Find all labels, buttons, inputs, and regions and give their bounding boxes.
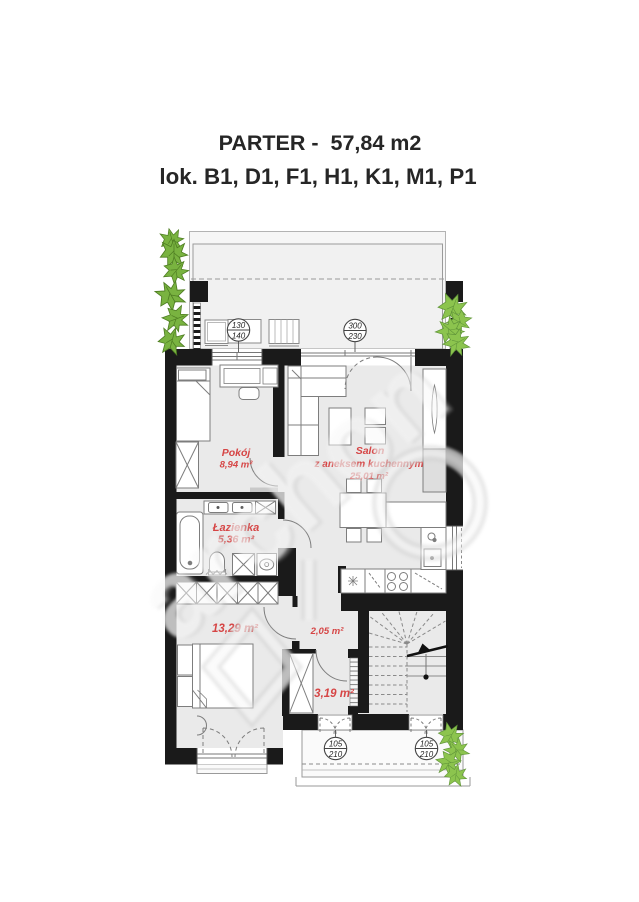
svg-text:105: 105 xyxy=(420,740,434,749)
svg-text:lok. B1, D1, F1, H1, K1, M1, P: lok. B1, D1, F1, H1, K1, M1, P1 xyxy=(159,164,476,189)
svg-text:140: 140 xyxy=(232,332,246,341)
svg-text:210: 210 xyxy=(419,750,434,759)
svg-text:3,19 m²: 3,19 m² xyxy=(314,688,355,700)
svg-text:210: 210 xyxy=(328,750,343,759)
svg-text:300: 300 xyxy=(348,322,362,331)
svg-text:2,05 m²: 2,05 m² xyxy=(310,626,345,637)
svg-text:105: 105 xyxy=(329,740,343,749)
svg-text:230: 230 xyxy=(347,332,362,341)
svg-text:PARTER - 57,84 m2: PARTER - 57,84 m2 xyxy=(219,131,422,155)
svg-text:130: 130 xyxy=(232,321,246,330)
